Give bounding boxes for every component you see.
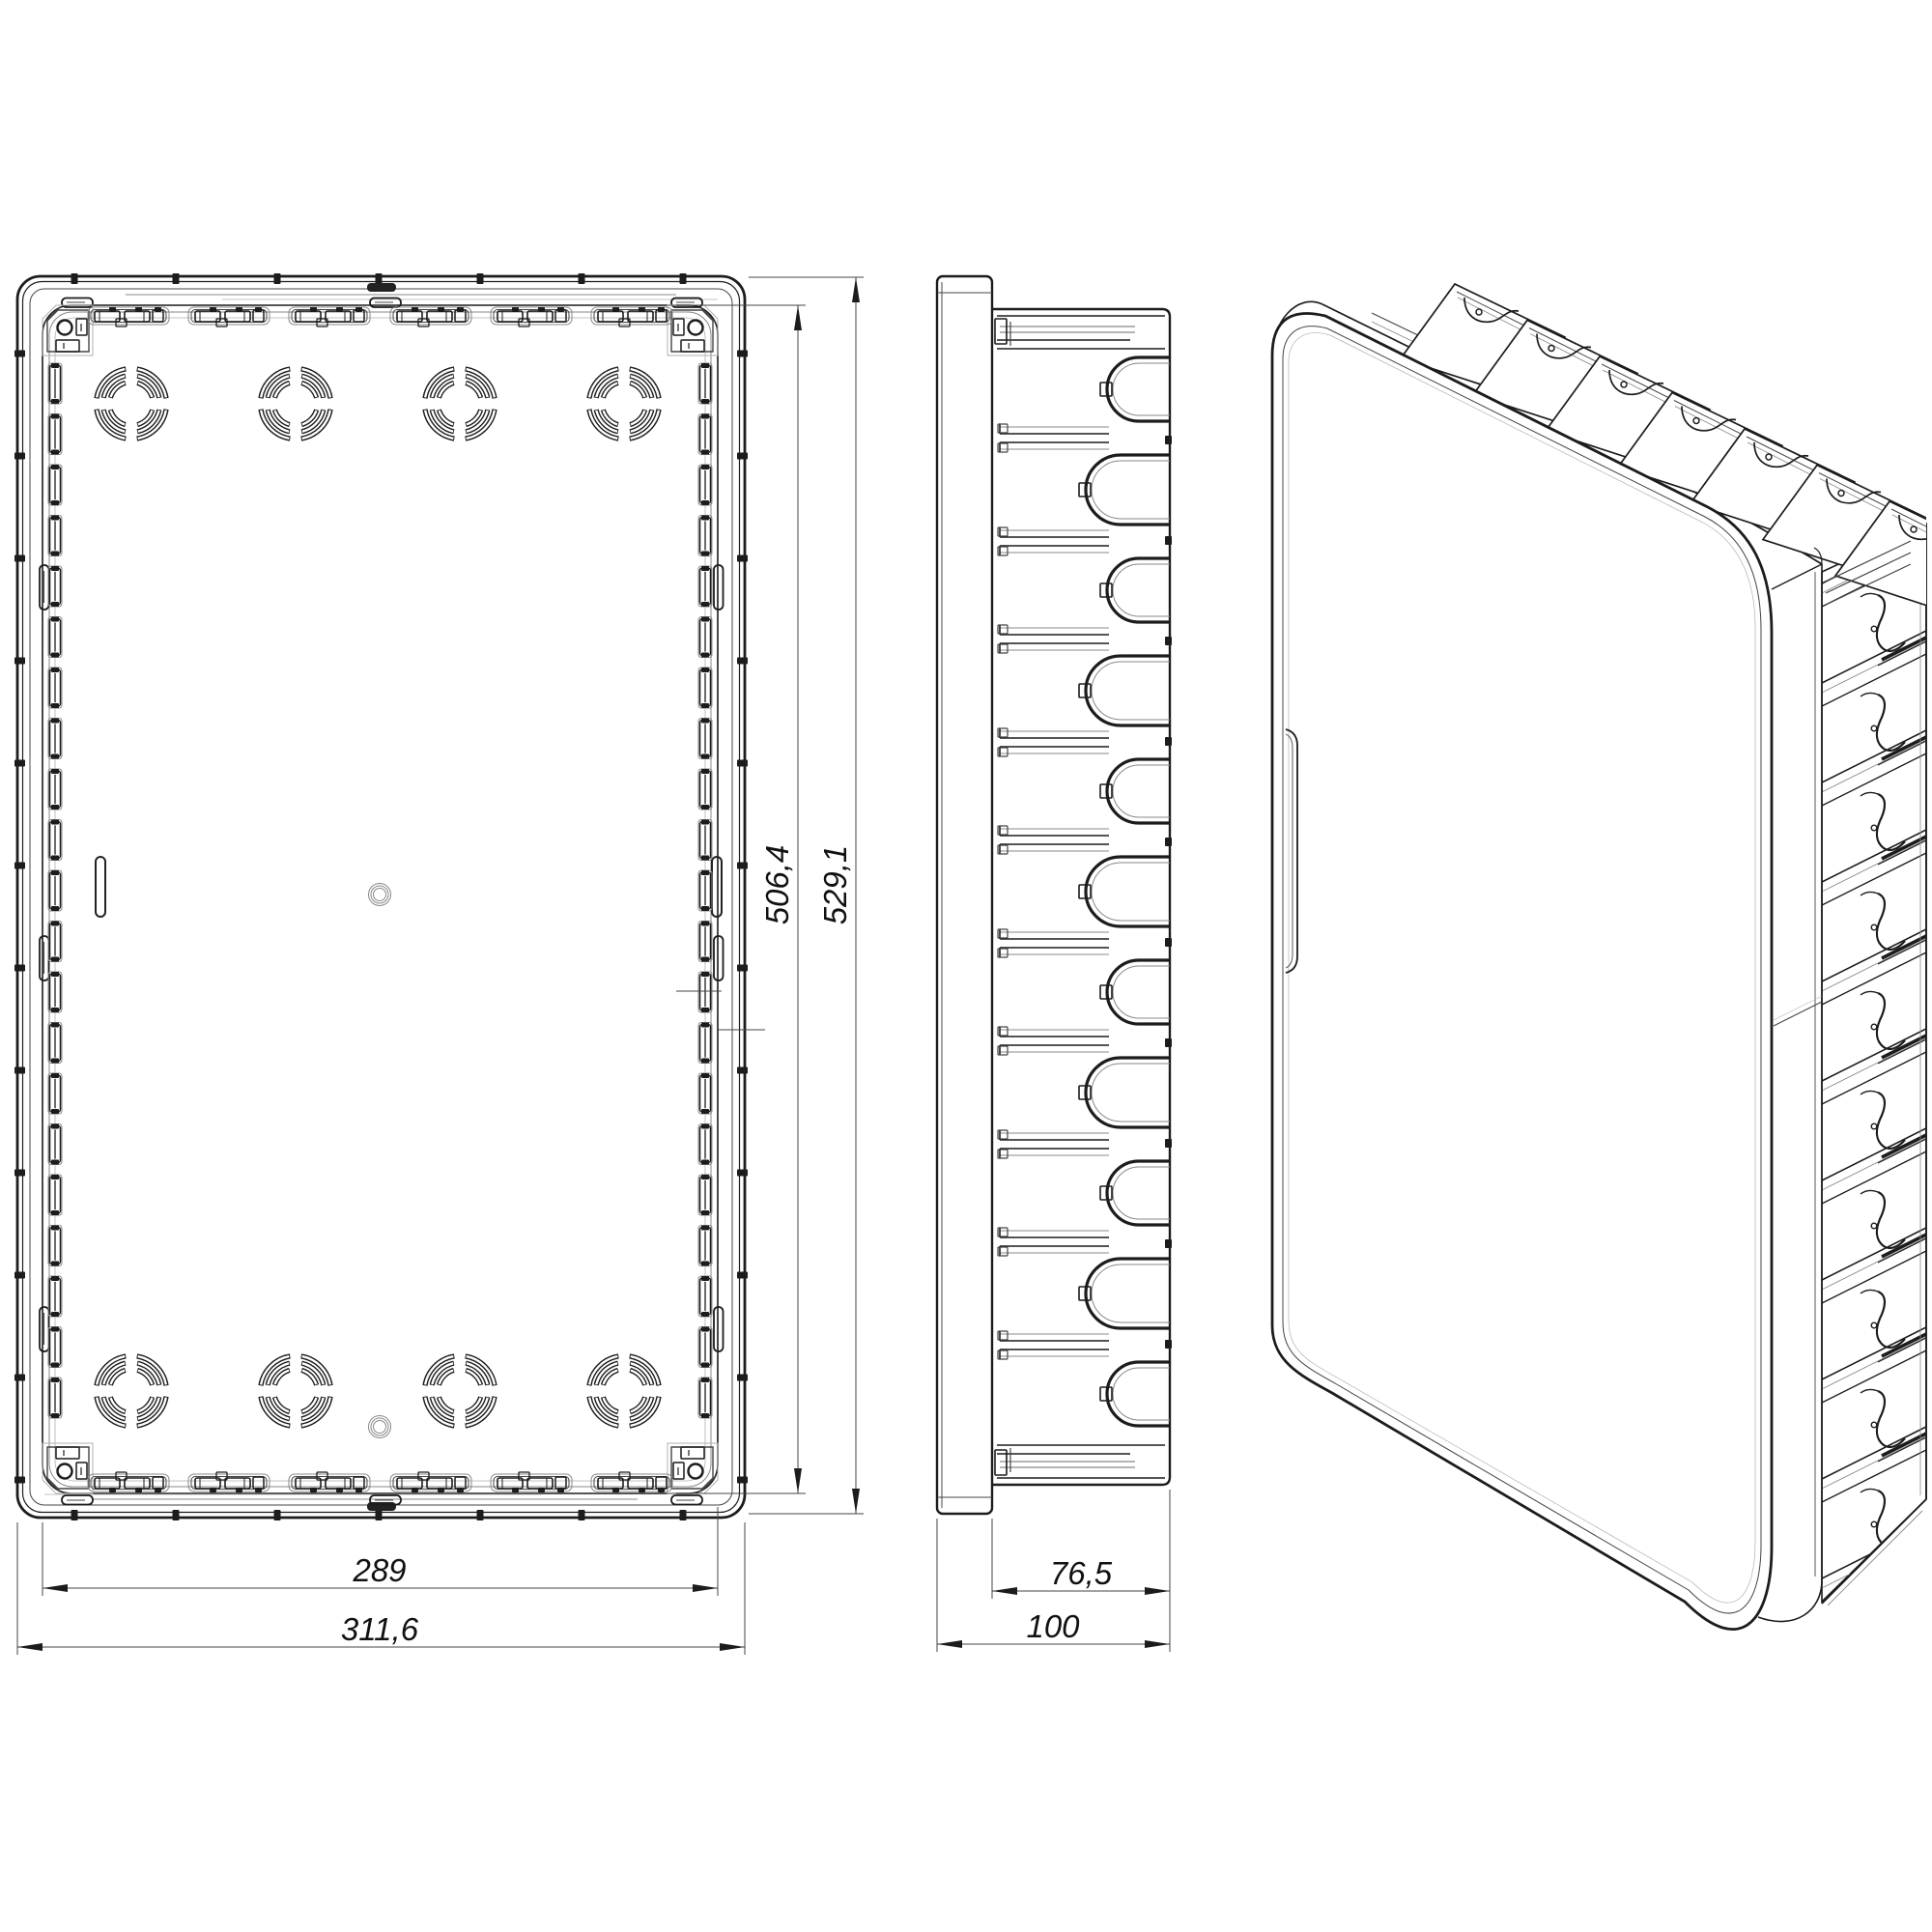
svg-text:311,6: 311,6 [341,1611,419,1647]
svg-text:289: 289 [352,1552,406,1588]
svg-text:506,4: 506,4 [759,845,795,925]
svg-text:76,5: 76,5 [1050,1555,1113,1591]
svg-text:529,1: 529,1 [817,845,853,925]
svg-text:100: 100 [1026,1608,1080,1644]
